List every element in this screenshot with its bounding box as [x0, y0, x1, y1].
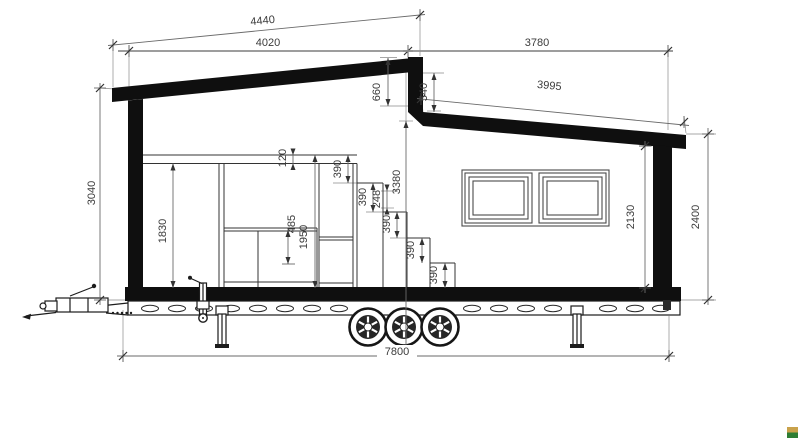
- support-jack-rear: [570, 306, 584, 348]
- dim-label: 3040: [86, 181, 98, 205]
- dim-label: 3995: [537, 79, 563, 93]
- dim-label: 7800: [385, 346, 409, 358]
- frame-end-cap: [663, 300, 671, 310]
- floor-slab: [125, 287, 681, 301]
- coupler-lever: [70, 287, 93, 296]
- dim-stair-tower: 1950: [298, 155, 318, 288]
- double-window: [462, 170, 609, 226]
- dim-room-left: 1830: [157, 164, 176, 289]
- dim-label: 660: [371, 83, 383, 101]
- hitch-socket: [45, 301, 57, 311]
- support-jack-front: [215, 306, 229, 348]
- dim-total-length: 7800: [117, 345, 675, 362]
- wall-left: [128, 99, 143, 288]
- dim-height-left: 3040: [86, 83, 106, 305]
- logo-bottom-bar: [787, 433, 798, 439]
- dim-label: 3380: [391, 170, 403, 194]
- dim-label: 390: [381, 215, 393, 233]
- dim-height-right-inner: 2130: [625, 141, 651, 293]
- dim-label: 390: [332, 160, 344, 178]
- dim-label: 3780: [525, 37, 549, 49]
- dim-plate-right: 3780: [403, 37, 673, 57]
- dim-label: 2400: [690, 205, 702, 229]
- brand-logo: [787, 427, 798, 438]
- dim-label: 1830: [157, 219, 169, 243]
- dim-label: 120: [277, 149, 289, 167]
- dim-loft-floor: 120: [277, 149, 296, 171]
- dim-label: 2130: [625, 205, 637, 229]
- tow-direction-arrow: [22, 314, 31, 320]
- drawbar-and-hitch: [22, 284, 132, 320]
- jockey-crank: [191, 279, 202, 284]
- wall-right: [653, 145, 672, 288]
- dim-label: 390: [428, 266, 440, 284]
- dim-label: 390: [357, 188, 369, 206]
- dim-label: 1950: [298, 225, 310, 249]
- trailer-wheel: [422, 309, 459, 346]
- trailer-wheel: [386, 309, 423, 346]
- dim-step-1: 390: [332, 155, 351, 183]
- dim-counter: 485: [282, 215, 298, 264]
- section-drawing: 4440 4020 3780 3995 3040: [0, 0, 800, 440]
- trailer-wheel: [350, 309, 387, 346]
- logo-top-bar: [787, 427, 798, 433]
- interior-structure: [143, 155, 455, 288]
- dim-label: 248: [371, 190, 383, 208]
- dim-step-5: 390: [405, 238, 425, 263]
- dim-label: 485: [286, 215, 298, 233]
- dim-label: 4440: [250, 14, 276, 28]
- trailer: [22, 276, 680, 348]
- dim-label: 390: [405, 241, 417, 259]
- dim-step-4: 390: [381, 212, 400, 238]
- dim-label: 4020: [256, 37, 280, 49]
- dim-step-6: 390: [428, 263, 448, 288]
- roof-right: [423, 112, 686, 149]
- dim-label: 540: [418, 83, 430, 101]
- section-drawing-canvas: 4440 4020 3780 3995 3040: [0, 0, 800, 440]
- dim-height-right-outer: 2400: [690, 128, 714, 305]
